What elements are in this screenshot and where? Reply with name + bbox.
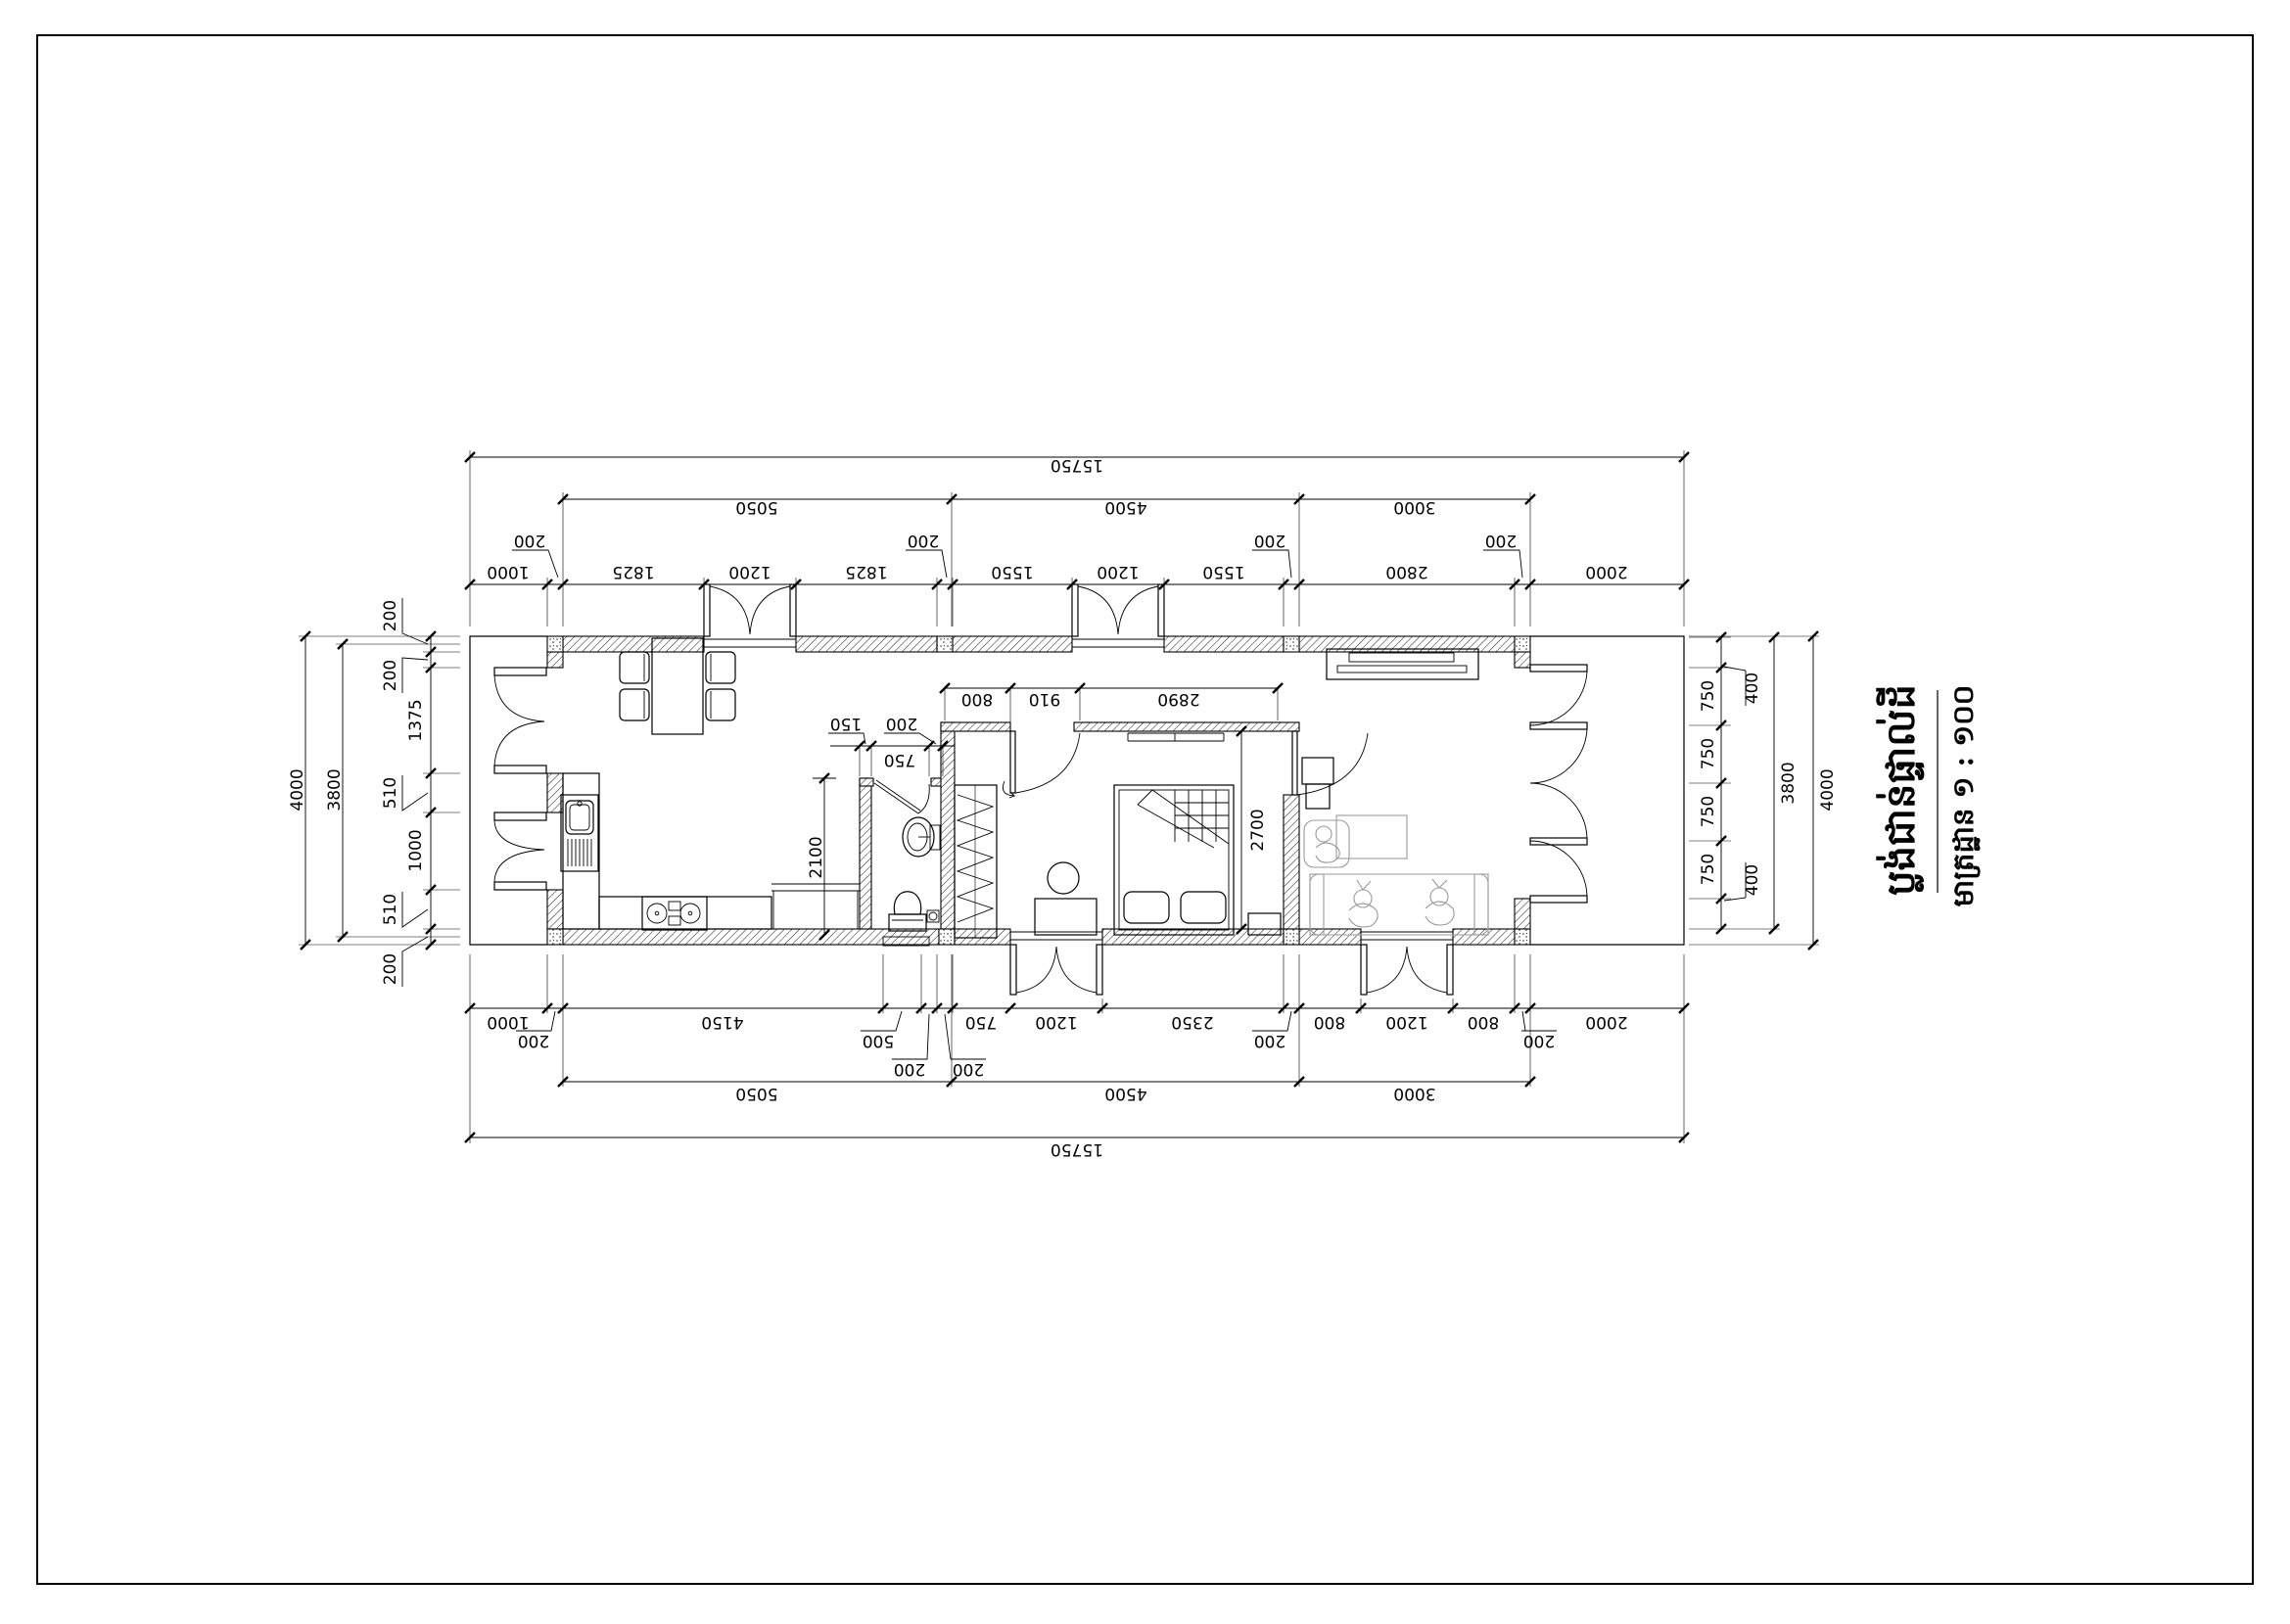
dim-label: 4500 bbox=[1104, 1084, 1146, 1103]
living-door-leaf bbox=[1292, 731, 1297, 795]
dim-label: 200 bbox=[894, 1059, 925, 1079]
door-leaf bbox=[1361, 945, 1367, 995]
blanket-fold bbox=[1138, 790, 1229, 848]
blanket-grid bbox=[1175, 790, 1229, 842]
burner-icon bbox=[680, 904, 700, 923]
dim-label: 1550 bbox=[991, 562, 1033, 581]
dim-label: 2700 bbox=[1248, 809, 1268, 851]
chair bbox=[620, 689, 649, 720]
interior-dimensions: 800 910 2890 750 150 200 2100 2700 bbox=[807, 683, 1283, 940]
dim-label: 1000 bbox=[487, 562, 529, 581]
scale-text: មាត្រដ្ឋាន ១ : ១០០ bbox=[1946, 685, 1981, 907]
dim-label: 3800 bbox=[1779, 762, 1799, 804]
closet-shelf bbox=[1128, 733, 1224, 741]
dim-label: 1550 bbox=[1202, 562, 1244, 581]
dim-label: 910 bbox=[1029, 689, 1060, 709]
dim-label: 2000 bbox=[1585, 1012, 1627, 1032]
stair bbox=[955, 785, 997, 938]
dim-label: 3000 bbox=[1393, 1084, 1435, 1103]
dim-label: 4500 bbox=[1104, 497, 1146, 517]
dim-label: 800 bbox=[961, 689, 993, 709]
dim-label: 750 bbox=[965, 1012, 997, 1032]
kitchen-counter-bottom bbox=[599, 897, 771, 929]
dim-label: 750 bbox=[1699, 680, 1718, 712]
door-leaf bbox=[1010, 945, 1016, 995]
toilet-bowl bbox=[894, 892, 920, 914]
desk-chair bbox=[1048, 862, 1079, 894]
coffee-table bbox=[1336, 815, 1407, 858]
bedroom-door-leaf bbox=[1010, 731, 1015, 793]
dim-label: 200 bbox=[518, 1031, 549, 1050]
people-figures bbox=[1304, 815, 1488, 935]
dim-label: 3000 bbox=[1393, 497, 1435, 517]
dim-label: 3800 bbox=[325, 768, 345, 811]
dim-label: 200 bbox=[514, 531, 545, 550]
dim-label: 1000 bbox=[487, 1012, 529, 1032]
dim-label: 1200 bbox=[728, 562, 771, 581]
dim-label: 200 bbox=[886, 714, 917, 733]
burner-icon bbox=[647, 904, 667, 923]
floor-plan bbox=[470, 584, 1684, 995]
dim-label: 200 bbox=[381, 953, 400, 985]
living-room bbox=[1302, 649, 1488, 935]
title-text: ប្លង់ជាន់ផ្ទាល់ដី bbox=[1876, 684, 1925, 896]
dim-label: 200 bbox=[1254, 1031, 1285, 1050]
chair bbox=[706, 652, 735, 683]
dim-label: 800 bbox=[1314, 1012, 1345, 1032]
dim-label: 4150 bbox=[701, 1012, 743, 1032]
dim-label: 500 bbox=[863, 1031, 894, 1050]
door-leaf bbox=[790, 584, 796, 636]
dim-label: 15750 bbox=[1051, 455, 1103, 475]
dim-label: 1200 bbox=[1097, 562, 1139, 581]
dim-label: 750 bbox=[1699, 796, 1718, 827]
dim-label: 200 bbox=[381, 660, 400, 691]
dim-label: 200 bbox=[1254, 531, 1285, 550]
title-block: ប្លង់ជាន់ផ្ទាល់ដី មាត្រដ្ឋាន ១ : ១០០ bbox=[1876, 684, 1981, 906]
dim-label: 4000 bbox=[288, 768, 307, 811]
pillow bbox=[1124, 892, 1169, 923]
dim-label: 2100 bbox=[807, 836, 826, 878]
door-leaf bbox=[1097, 945, 1102, 995]
dim-label: 750 bbox=[1699, 854, 1718, 885]
dim-label: 200 bbox=[1485, 531, 1517, 550]
side-table bbox=[771, 884, 860, 929]
dim-label: 200 bbox=[908, 531, 939, 550]
dim-label: 2350 bbox=[1171, 1012, 1213, 1032]
bottom-dimensions: 1000 4150 750 1200 2350 800 1200 800 200… bbox=[465, 954, 1689, 1159]
left-dimensions: 4000 3800 200 200 1375 510 1000 510 200 bbox=[288, 598, 460, 987]
chair bbox=[706, 689, 735, 720]
sofa bbox=[1310, 874, 1488, 935]
kitchen bbox=[561, 638, 860, 930]
tv-unit bbox=[1302, 758, 1333, 784]
dim-label: 2000 bbox=[1585, 562, 1627, 581]
right-doors bbox=[1530, 665, 1587, 903]
dim-label: 1200 bbox=[1035, 1012, 1077, 1032]
dim-label: 200 bbox=[381, 600, 400, 631]
dim-label: 510 bbox=[381, 894, 400, 925]
door-leaf bbox=[1072, 584, 1078, 636]
dim-label: 1200 bbox=[1385, 1012, 1427, 1032]
bathroom bbox=[874, 780, 940, 931]
dining-table bbox=[652, 638, 703, 734]
dim-label: 5050 bbox=[735, 1084, 777, 1103]
left-porch bbox=[470, 636, 547, 945]
dim-label: 4000 bbox=[1818, 768, 1838, 811]
drainboard bbox=[568, 839, 591, 866]
dim-label: 400 bbox=[1743, 864, 1762, 896]
dim-label: 750 bbox=[1699, 738, 1718, 769]
right-dimensions: 750 750 750 750 400 400 3800 4000 bbox=[1689, 631, 1838, 950]
dim-label: 1825 bbox=[845, 562, 887, 581]
dim-label: 200 bbox=[953, 1059, 984, 1079]
dim-label: 510 bbox=[381, 777, 400, 809]
dim-label: 1825 bbox=[612, 562, 654, 581]
door-leaf bbox=[1447, 945, 1453, 995]
dim-label: 2890 bbox=[1157, 689, 1199, 709]
bedroom bbox=[1003, 731, 1368, 935]
chair bbox=[620, 652, 649, 683]
pillow bbox=[1181, 892, 1226, 923]
desk bbox=[1035, 899, 1097, 935]
tap-icon bbox=[578, 802, 582, 806]
floor-plan-svg: 15750 5050 4500 3000 1000 1825 1200 1825… bbox=[0, 0, 2290, 1619]
dim-label: 150 bbox=[830, 714, 862, 733]
dim-label: 5050 bbox=[735, 497, 777, 517]
bath-door-leaf bbox=[874, 780, 920, 813]
dim-label: 750 bbox=[884, 750, 915, 769]
dim-label: 15750 bbox=[1051, 1139, 1103, 1159]
kitchen-counter-left bbox=[563, 773, 599, 929]
dim-label: 2800 bbox=[1385, 562, 1427, 581]
dim-label: 1375 bbox=[406, 699, 426, 741]
dim-label: 800 bbox=[1468, 1012, 1499, 1032]
dim-label: 200 bbox=[1523, 1031, 1555, 1050]
door-leaf bbox=[704, 584, 710, 636]
drawing-sheet: 15750 5050 4500 3000 1000 1825 1200 1825… bbox=[0, 0, 2290, 1619]
door-leaf bbox=[1158, 584, 1164, 636]
dim-label: 1000 bbox=[406, 829, 426, 871]
dim-label: 400 bbox=[1743, 673, 1762, 704]
left-doors bbox=[494, 668, 546, 890]
